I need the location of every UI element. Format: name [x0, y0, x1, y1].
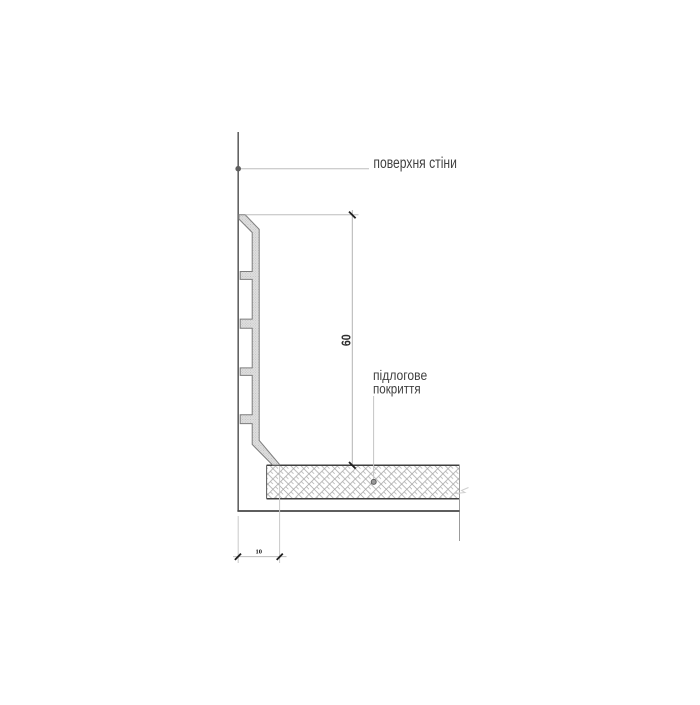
svg-text:покриття: покриття — [373, 381, 421, 396]
svg-text:10: 10 — [256, 548, 263, 555]
svg-text:поверхня стіни: поверхня стіни — [373, 155, 457, 172]
svg-text:60: 60 — [340, 334, 354, 346]
